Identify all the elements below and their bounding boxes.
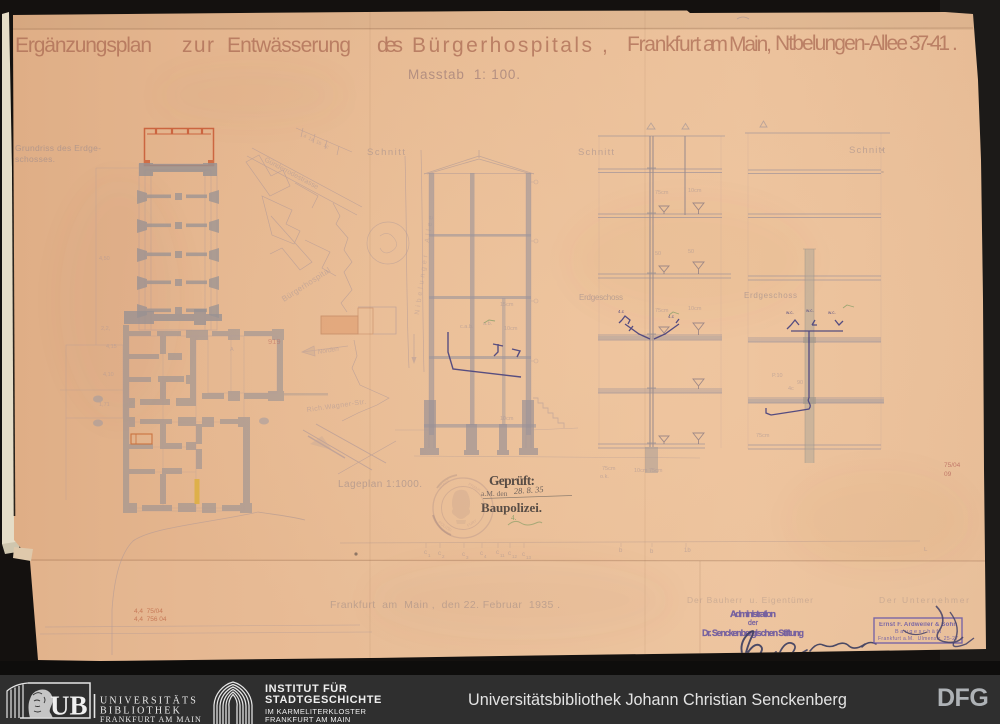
- svg-text:50: 50: [655, 251, 661, 257]
- svg-text:4,15: 4,15: [106, 344, 117, 350]
- svg-text:1,71: 1,71: [99, 402, 110, 408]
- svg-text:Entwässerung: Entwässerung: [227, 34, 351, 57]
- svg-text:75cm: 75cm: [756, 433, 770, 439]
- svg-text:schosses.: schosses.: [15, 154, 55, 164]
- svg-text:Ergänzungsplan: Ergänzungsplan: [15, 34, 152, 57]
- svg-text:UB: UB: [50, 691, 88, 721]
- svg-text:Frankfurt a.M. Ulmenstr. 25-2: Frankfurt a.M. Ulmenstr. 25-27: [878, 636, 958, 642]
- svg-text:Universitätsbibliothek Johann: Universitätsbibliothek Johann Christian …: [468, 691, 847, 709]
- svg-text:.: .: [952, 32, 958, 55]
- svg-text:c: c: [424, 550, 427, 556]
- svg-text:12: 12: [512, 554, 518, 559]
- svg-text:28. 8. 35: 28. 8. 35: [513, 484, 543, 496]
- svg-text:c: c: [522, 552, 525, 558]
- svg-text:c: c: [480, 551, 483, 557]
- svg-text:2,2,: 2,2,: [101, 326, 111, 332]
- svg-text:P.10: P.10: [772, 373, 783, 379]
- svg-text:Frankfurt am Main , den 22.: Frankfurt am Main , den 22. Februar 1935…: [330, 599, 560, 611]
- svg-text:4,4 75/04: 4,4 75/04: [134, 608, 163, 615]
- svg-text:Erdgeschoss: Erdgeschoss: [744, 291, 797, 300]
- svg-text:75cm: 75cm: [602, 466, 616, 472]
- svg-text:Baupolizei.: Baupolizei.: [481, 500, 542, 515]
- svg-text:4,10: 4,10: [103, 372, 114, 378]
- svg-text:11: 11: [500, 553, 505, 558]
- svg-text:STADTGESCHICHTE: STADTGESCHICHTE: [265, 694, 382, 706]
- svg-text:Ntbelungen-Allee: Ntbelungen-Allee: [775, 32, 908, 55]
- svg-text:FRANKFURT AM MAIN: FRANKFURT AM MAIN: [265, 715, 351, 724]
- svg-text:zur: zur: [182, 34, 214, 57]
- svg-text:4,4 756 04: 4,4 756 04: [134, 616, 167, 623]
- svg-text:c: c: [508, 551, 511, 557]
- svg-text:w.c.: w.c.: [828, 310, 836, 315]
- svg-text:der: der: [748, 620, 759, 627]
- svg-text:c.a.b.: c.a.b.: [460, 324, 474, 330]
- svg-text:10cm: 10cm: [688, 188, 702, 194]
- svg-text:Frankfurt: Frankfurt: [627, 33, 701, 56]
- svg-text:am: am: [703, 33, 728, 56]
- svg-text:Schnitt: Schnitt: [849, 145, 885, 156]
- svg-text:10cm: 10cm: [504, 326, 518, 332]
- svg-text:a.b.: a.b.: [483, 321, 493, 327]
- svg-text:A: A: [230, 347, 234, 353]
- svg-text:Erdgeschoss: Erdgeschoss: [579, 293, 623, 302]
- svg-text:75cm: 75cm: [655, 308, 669, 314]
- svg-text:w.c.: w.c.: [806, 308, 814, 313]
- svg-text:Administration: Administration: [730, 609, 776, 620]
- svg-text:Schnitt: Schnitt: [367, 147, 405, 158]
- svg-text:50: 50: [688, 249, 694, 255]
- svg-text:des: des: [377, 34, 403, 57]
- svg-text:10cm: 10cm: [500, 416, 514, 422]
- svg-text:1b: 1b: [684, 548, 691, 554]
- svg-text:FRANKFURT AM MAIN: FRANKFURT AM MAIN: [100, 715, 202, 724]
- svg-text:Masstab 1: 100.: Masstab 1: 100.: [408, 67, 520, 82]
- svg-text:=: =: [881, 148, 884, 154]
- svg-text:4,50: 4,50: [99, 256, 110, 262]
- svg-text:4.: 4.: [511, 514, 517, 522]
- svg-text:15cm: 15cm: [500, 302, 514, 308]
- svg-text:Ernst F. Ardweiler & Sohn: Ernst F. Ardweiler & Sohn: [879, 622, 957, 628]
- svg-text:Grundriss des Erdge-: Grundriss des Erdge-: [15, 143, 101, 153]
- svg-text:90: 90: [797, 380, 803, 386]
- svg-text:13: 13: [526, 555, 532, 560]
- svg-text:10cm: 10cm: [688, 306, 702, 312]
- svg-text:4.c: 4.c: [618, 309, 625, 314]
- svg-text:10cm 75cm: 10cm 75cm: [634, 468, 663, 474]
- svg-text:c: c: [496, 550, 499, 556]
- svg-text:,: ,: [602, 34, 608, 57]
- svg-text:Schnitt: Schnitt: [578, 147, 614, 158]
- svg-text:=: =: [881, 170, 884, 176]
- svg-text:o.k.: o.k.: [600, 474, 609, 480]
- svg-text:75cm: 75cm: [655, 190, 669, 196]
- svg-text:Der Unternehmer: Der Unternehmer: [879, 595, 969, 605]
- svg-text:c: c: [438, 551, 441, 557]
- svg-text:919: 919: [268, 337, 281, 346]
- svg-text:Der Bauherr u. Eigentümer: Der Bauherr u. Eigentümer: [687, 595, 813, 605]
- svg-text:09: 09: [944, 471, 952, 478]
- svg-text:37-41: 37-41: [909, 32, 950, 55]
- svg-text:4c: 4c: [788, 386, 794, 392]
- svg-text:Lageplan 1:1000.: Lageplan 1:1000.: [338, 479, 422, 490]
- svg-text:75/04: 75/04: [944, 462, 961, 469]
- svg-text:Main,: Main,: [729, 33, 772, 56]
- svg-text:DFG: DFG: [937, 684, 988, 712]
- svg-text:w.c.: w.c.: [786, 310, 794, 315]
- svg-text:c: c: [462, 552, 465, 558]
- svg-text:a.M. den: a.M. den: [481, 489, 508, 498]
